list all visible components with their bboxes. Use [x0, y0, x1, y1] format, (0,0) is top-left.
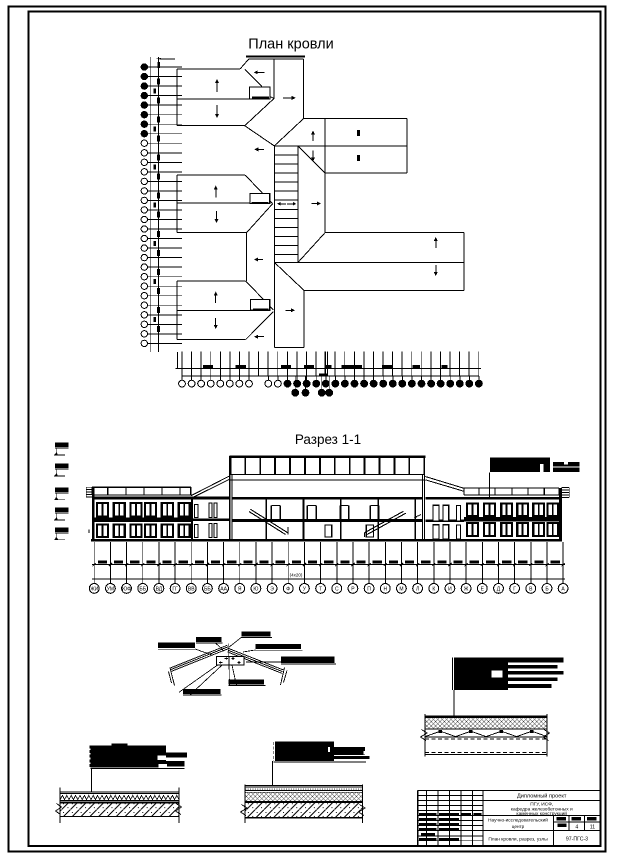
svg-text:И: И — [448, 586, 452, 592]
svg-text:Н: Н — [383, 586, 387, 592]
svg-text:ЖИ: ЖИ — [90, 586, 99, 592]
svg-text:Научно-исследовательский: Научно-исследовательский — [488, 816, 548, 822]
svg-text:4: 4 — [575, 824, 578, 830]
svg-text:План кровли, разрез, узлы: План кровли, разрез, узлы — [488, 837, 548, 843]
svg-text:Разрез 1-1: Разрез 1-1 — [295, 432, 361, 447]
svg-text:Т: Т — [319, 586, 322, 592]
svg-text:ВВ: ВВ — [188, 586, 195, 592]
svg-text:ГГ: ГГ — [172, 586, 178, 592]
svg-text:ЮФ: ЮФ — [122, 586, 131, 592]
svg-text:Я: Я — [238, 586, 242, 592]
svg-text:Ю: Ю — [253, 586, 258, 592]
svg-text:Л: Л — [416, 586, 419, 592]
svg-text:УМ: УМ — [107, 586, 114, 592]
svg-text:Ж: Ж — [464, 586, 469, 592]
svg-text:План кровли: План кровли — [248, 37, 333, 53]
svg-text:11: 11 — [590, 824, 595, 830]
svg-text:(4х20): (4х20) — [290, 573, 303, 578]
svg-text:АА: АА — [220, 586, 227, 592]
svg-text:С: С — [335, 586, 339, 592]
svg-text:97-ПГС-3: 97-ПГС-3 — [566, 837, 588, 843]
svg-text:ББ: ББ — [139, 586, 146, 592]
svg-text:Ф: Ф — [286, 586, 290, 592]
svg-text:Дипломный проект: Дипломный проект — [517, 793, 567, 800]
svg-text:П: П — [367, 586, 371, 592]
svg-text:центр: центр — [512, 824, 525, 829]
svg-text:К: К — [432, 586, 435, 592]
svg-text:ББ: ББ — [204, 586, 211, 592]
svg-text:Э: Э — [270, 586, 274, 592]
svg-text:ВД: ВД — [156, 586, 163, 592]
svg-text:каменных конструкций: каменных конструкций — [516, 810, 567, 817]
svg-text:Г: Г — [513, 586, 516, 592]
svg-text:М: М — [399, 586, 403, 592]
